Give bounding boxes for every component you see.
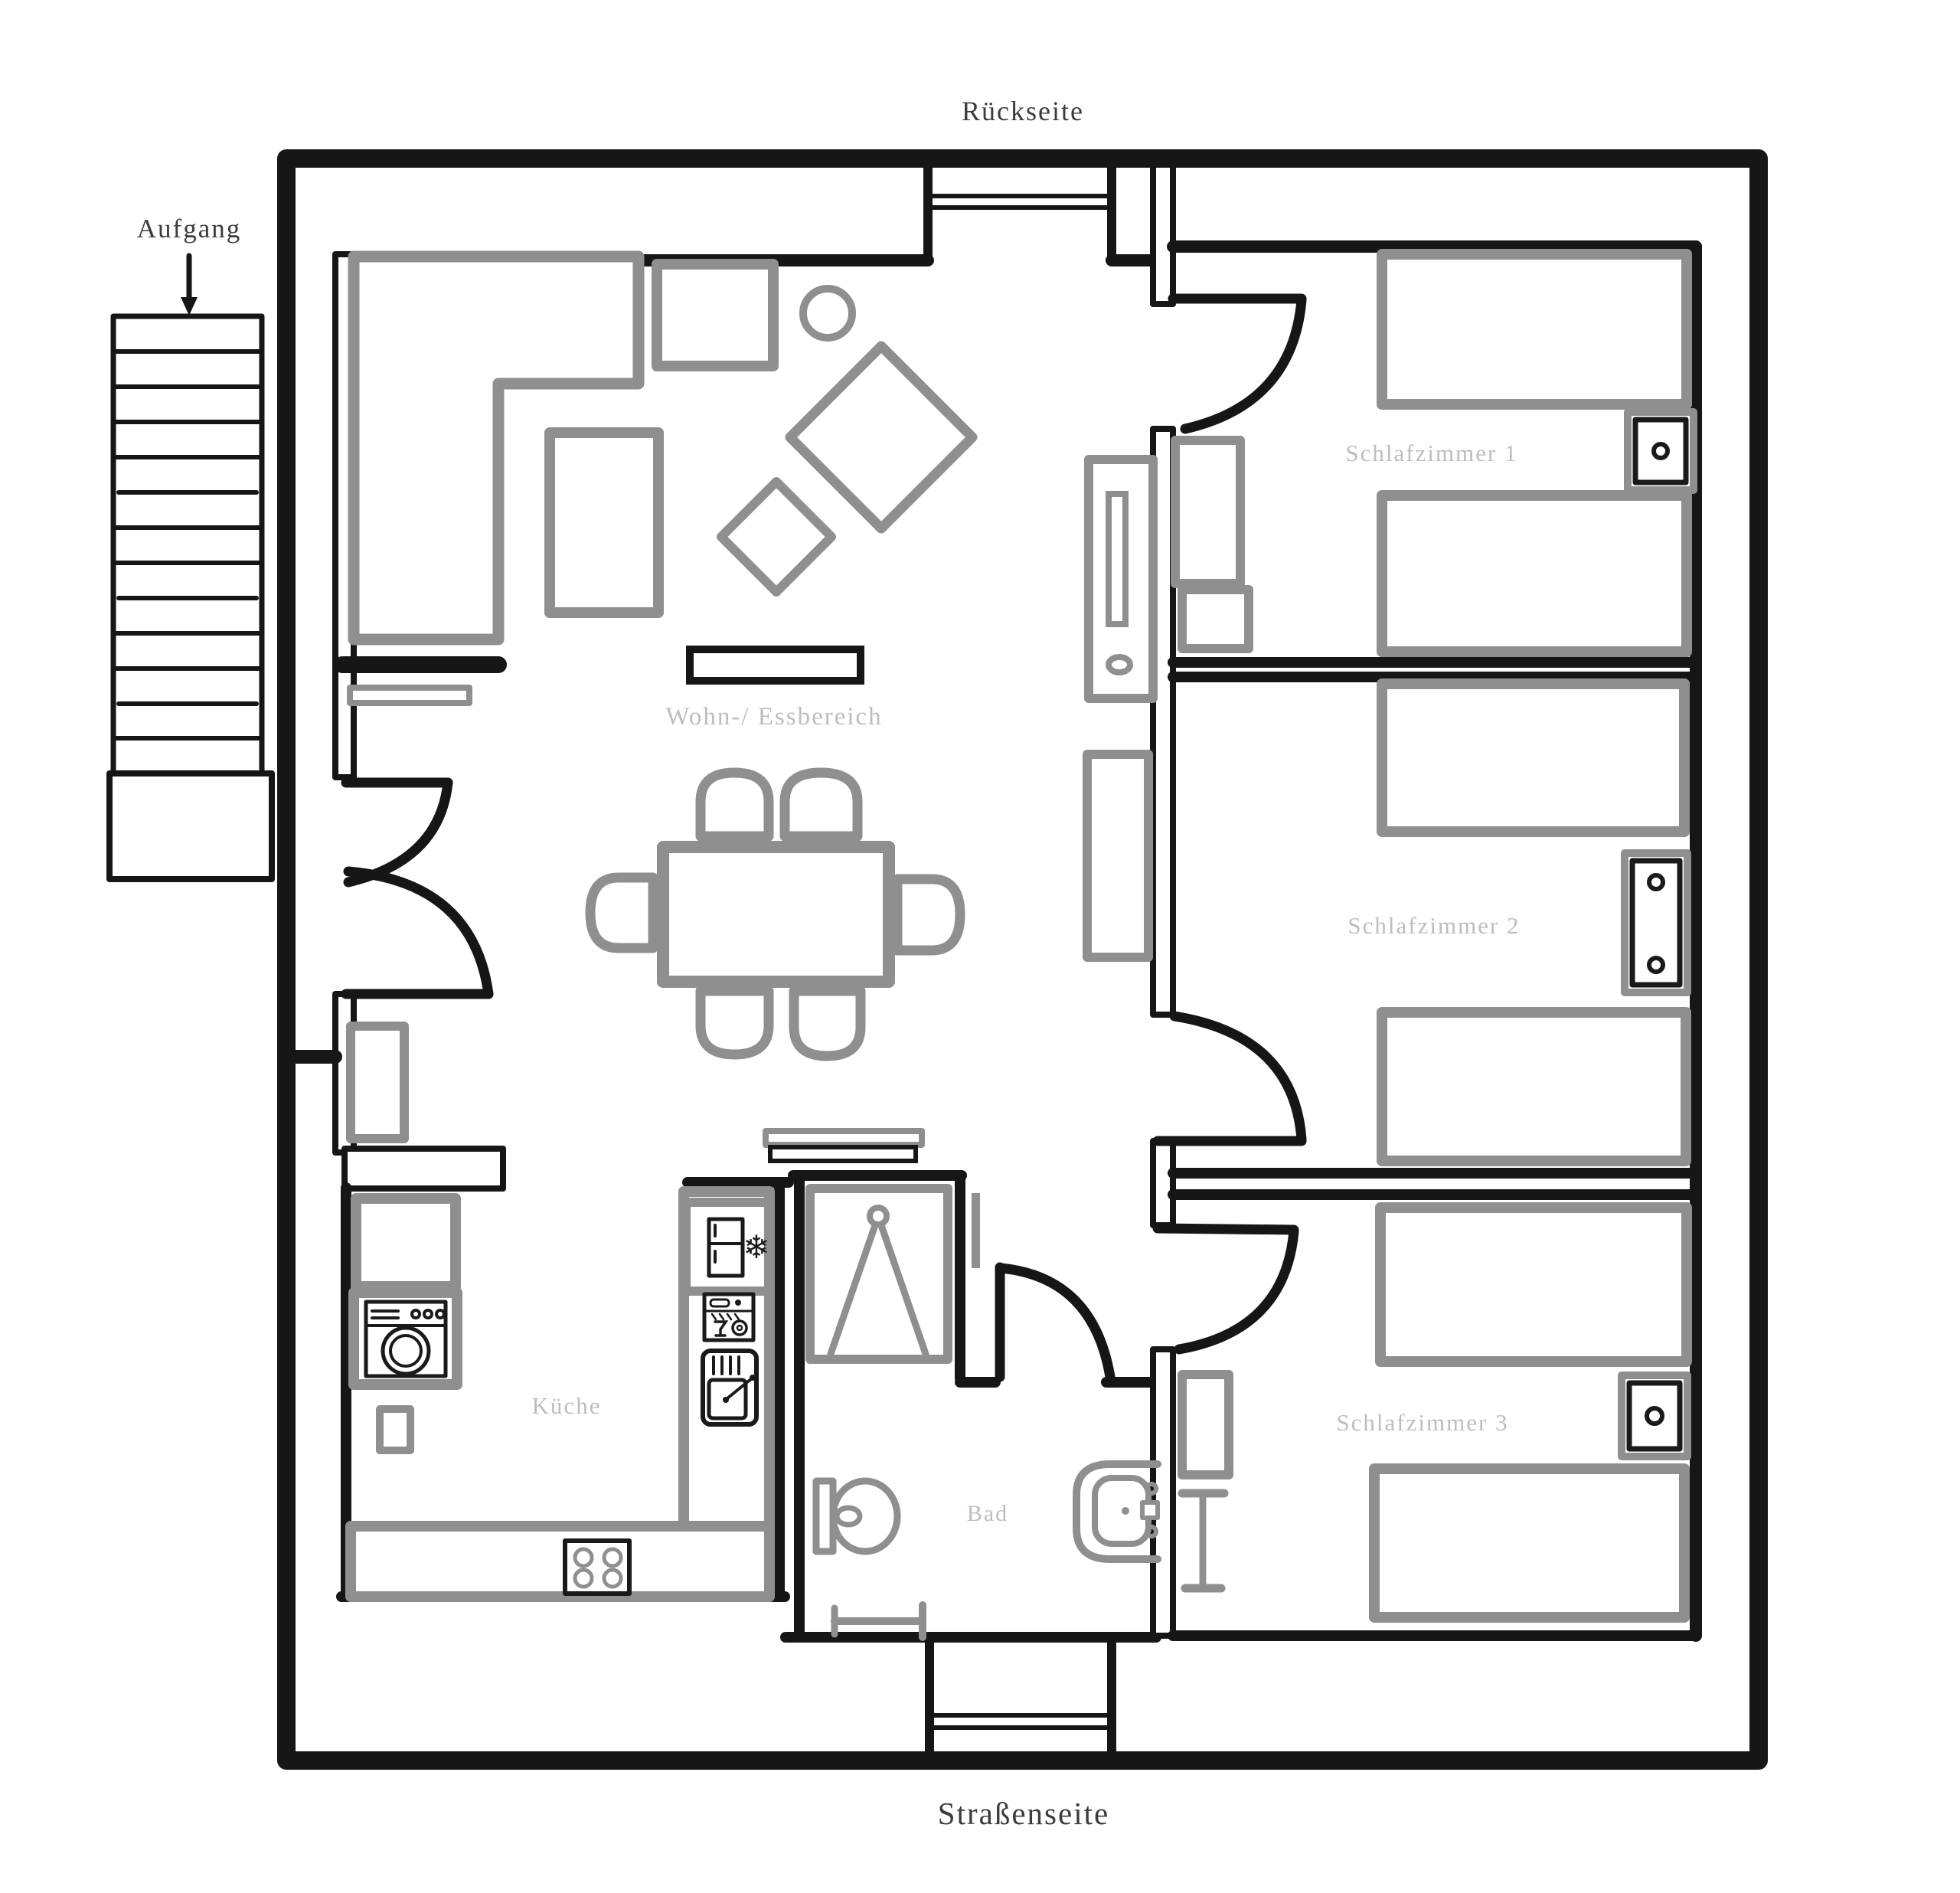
chair <box>590 878 653 948</box>
rug-large <box>790 346 972 528</box>
wardrobe <box>1182 1375 1229 1475</box>
living-room-label: Wohn-/ Essbereich <box>665 703 882 731</box>
chair <box>785 773 857 836</box>
bedroom3-label: Schlafzimmer 3 <box>1336 1409 1508 1436</box>
kitchen-sink-icon <box>703 1351 756 1424</box>
hall-shelf <box>350 688 469 703</box>
stair-landing <box>109 773 272 879</box>
bedroom2-door <box>1158 1016 1302 1141</box>
tall-cabinet-mirror <box>1089 459 1153 698</box>
armchair <box>657 264 773 366</box>
bedroom3-door <box>1158 1228 1294 1349</box>
fridge-icon: ❄ <box>686 1202 770 1291</box>
radiator <box>972 1193 980 1268</box>
chair <box>701 991 769 1054</box>
floor-plan-page: Rückseite Straßenseite Aufgang <box>0 0 1960 1893</box>
back-side-label: Rückseite <box>962 96 1084 126</box>
chair <box>794 991 861 1056</box>
street-side-label: Straßenseite <box>938 1796 1109 1831</box>
low-cabinet <box>1087 754 1148 957</box>
valet-stand <box>1182 1493 1224 1588</box>
bed <box>1382 1012 1686 1161</box>
bed <box>1382 254 1687 404</box>
snowflake-icon: ❄ <box>743 1231 769 1266</box>
side-table <box>550 433 658 613</box>
bedroom1-door <box>1173 299 1302 429</box>
kitchen-counter-bottom <box>351 1526 769 1597</box>
plant <box>803 289 852 338</box>
floor-plan-drawing: Rückseite Straßenseite Aufgang <box>0 0 1960 1893</box>
bedroom2-label: Schlafzimmer 2 <box>1347 912 1520 939</box>
kitchen-label: Küche <box>532 1392 602 1419</box>
dishwasher-icon <box>704 1294 753 1340</box>
nightstand <box>1628 412 1694 490</box>
living-area <box>350 257 1153 1268</box>
entrance-door <box>346 783 488 994</box>
window-front <box>929 1637 1112 1752</box>
bed <box>1380 1208 1687 1362</box>
staircase <box>109 316 272 879</box>
hall-bench <box>766 1131 922 1161</box>
down-arrow-icon <box>181 256 198 315</box>
chair <box>701 773 769 836</box>
stairs-label: Aufgang <box>137 214 241 244</box>
bathroom-area <box>810 1188 1158 1637</box>
window-back <box>928 168 1112 260</box>
bed <box>1382 495 1687 652</box>
kitchen-stool <box>380 1409 410 1450</box>
dresser <box>1182 590 1249 649</box>
rug-small <box>721 482 831 592</box>
bath-door <box>1000 1267 1110 1377</box>
bath-label: Bad <box>967 1501 1008 1526</box>
shower-icon <box>810 1188 948 1359</box>
nightstand <box>1625 853 1687 992</box>
bed <box>1374 1469 1684 1617</box>
nightstand <box>1622 1375 1687 1457</box>
sideboard <box>690 649 861 681</box>
washing-machine-icon <box>354 1293 457 1385</box>
bedroom1-label: Schlafzimmer 1 <box>1345 440 1517 466</box>
chair <box>897 879 960 950</box>
shoe-cabinet <box>351 1026 404 1139</box>
kitchen-cabinet <box>356 1198 456 1287</box>
dining-table <box>663 847 889 982</box>
bath-sink-icon <box>1076 1464 1158 1559</box>
stove-icon <box>565 1541 629 1594</box>
toilet-icon <box>816 1481 897 1551</box>
bed <box>1382 684 1684 832</box>
wardrobe <box>1175 440 1240 584</box>
